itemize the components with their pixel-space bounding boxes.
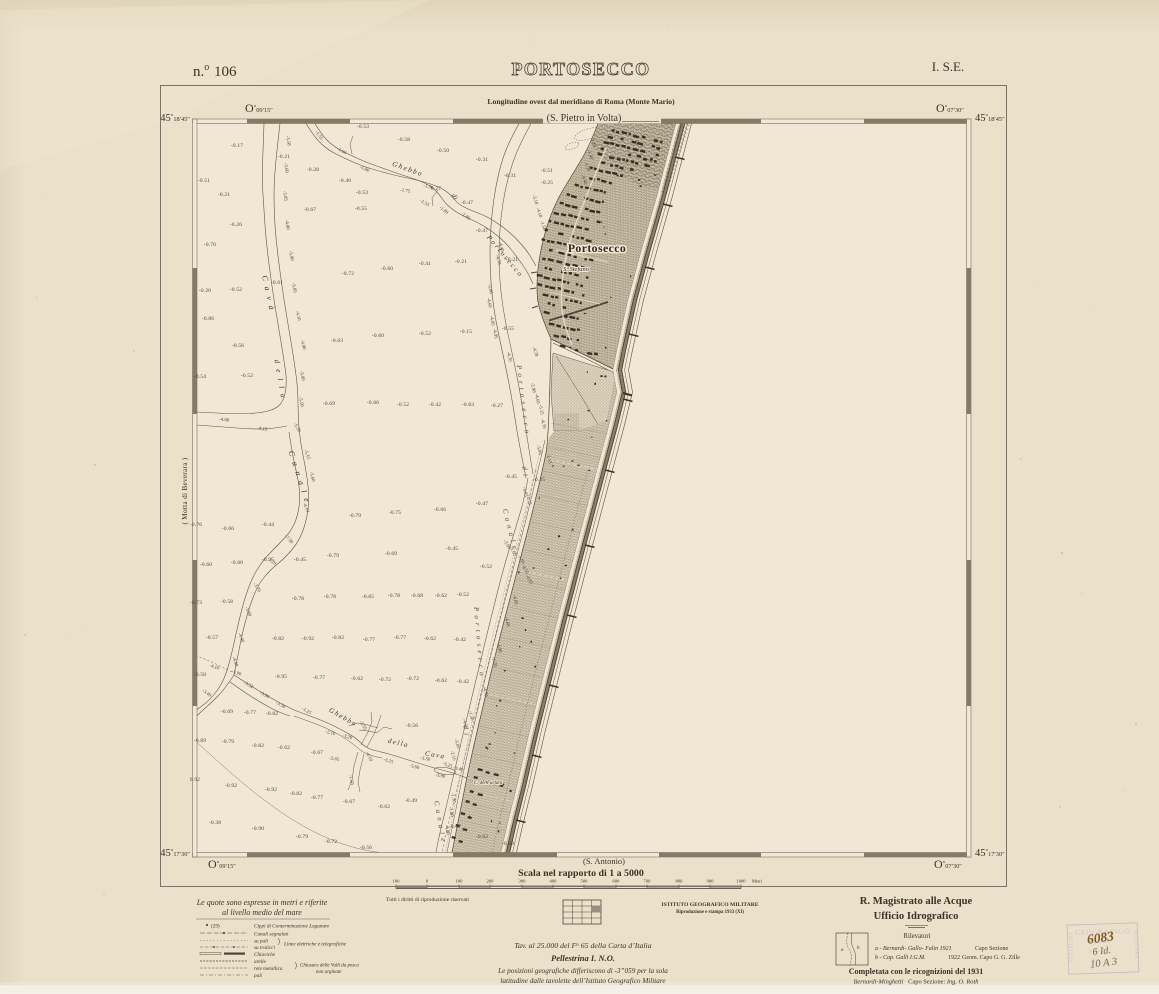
svg-text:(S. Pietro in Volta): (S. Pietro in Volta) bbox=[547, 113, 622, 124]
svg-text:Chiusura delle Valli da pesca: Chiusura delle Valli da pesca bbox=[300, 964, 359, 969]
svg-text:-0.69: -0.69 bbox=[385, 551, 397, 557]
svg-text:-0.20: -0.20 bbox=[199, 288, 211, 294]
svg-text:-0.90: -0.90 bbox=[252, 826, 264, 832]
svg-text:-0.54: -0.54 bbox=[194, 374, 206, 380]
svg-text:800: 800 bbox=[676, 879, 684, 884]
svg-text:-0.60: -0.60 bbox=[372, 333, 384, 339]
svg-text:-0.82: -0.82 bbox=[290, 791, 302, 797]
svg-text:-0.53: -0.53 bbox=[356, 190, 368, 196]
svg-text:-0.62: -0.62 bbox=[378, 804, 390, 810]
svg-text:-0.56: -0.56 bbox=[406, 723, 418, 729]
svg-text:-0.63: -0.63 bbox=[331, 338, 343, 344]
svg-text:Tav. al 25.000 del Fo 65 della: Tav. al 25.000 del Fo 65 della Carta d’I… bbox=[514, 941, 651, 950]
svg-text:Completata con le ricognizioni: Completata con le ricognizioni del 1931 bbox=[849, 967, 983, 976]
svg-text:n.o 106: n.o 106 bbox=[193, 62, 237, 80]
svg-text:-0.52: -0.52 bbox=[397, 402, 409, 408]
svg-text:-0.49: -0.49 bbox=[405, 798, 417, 804]
svg-text:0.92: 0.92 bbox=[190, 777, 200, 783]
svg-text:-0.40: -0.40 bbox=[339, 178, 351, 184]
svg-text:-0.45: -0.45 bbox=[294, 557, 306, 563]
svg-text:-0.77: -0.77 bbox=[394, 635, 406, 641]
svg-text:700: 700 bbox=[644, 879, 652, 884]
svg-text:(29): (29) bbox=[211, 923, 220, 930]
svg-text:Bernardi-Minghetti Capo Sezi: Bernardi-Minghetti Capo Sezione: Ing. O.… bbox=[854, 979, 979, 986]
svg-text:pali: pali bbox=[253, 973, 263, 979]
svg-text:600: 600 bbox=[613, 879, 621, 884]
svg-text:-0.69: -0.69 bbox=[323, 401, 335, 407]
svg-text:-0.67: -0.67 bbox=[304, 207, 316, 213]
svg-text:Tutti i diritti di riproduzion: Tutti i diritti di riproduzione riservat… bbox=[386, 897, 469, 903]
svg-text:ISTITUTO GEOGRAFICO MILITARE: ISTITUTO GEOGRAFICO MILITARE bbox=[661, 902, 758, 908]
svg-text:-0.50: -0.50 bbox=[437, 148, 449, 154]
svg-text:-0.73: -0.73 bbox=[190, 600, 202, 606]
svg-text:-0.79: -0.79 bbox=[222, 739, 234, 745]
svg-text:a - Bernardi- Gallo- Falin 192: a - Bernardi- Gallo- Falin 1921 bbox=[875, 946, 952, 952]
svg-text:-0.83: -0.83 bbox=[462, 402, 474, 408]
svg-text:-0.77: -0.77 bbox=[313, 675, 325, 681]
svg-text:300: 300 bbox=[519, 879, 527, 884]
svg-text:-0.49: -0.49 bbox=[502, 841, 514, 847]
svg-text:-0.78: -0.78 bbox=[388, 593, 400, 599]
svg-text:Metri: Metri bbox=[752, 879, 763, 884]
svg-text:Le quote sono espresse in metr: Le quote sono espresse in metri e riferi… bbox=[196, 898, 328, 907]
svg-text:-0.52: -0.52 bbox=[241, 373, 253, 379]
svg-text:Canali segnalati: Canali segnalati bbox=[254, 932, 289, 938]
svg-text:-0.82: -0.82 bbox=[332, 635, 344, 641]
svg-text:-0.78: -0.78 bbox=[292, 596, 304, 602]
svg-text:-0.60: -0.60 bbox=[200, 562, 212, 568]
svg-text:-0.21: -0.21 bbox=[506, 257, 518, 263]
svg-text:-0.55: -0.55 bbox=[502, 326, 514, 332]
svg-text:-0.60: -0.60 bbox=[381, 266, 393, 272]
svg-text:Pellestrina I. N.O.: Pellestrina I. N.O. bbox=[551, 953, 615, 963]
svg-text:-0.51: -0.51 bbox=[198, 178, 210, 184]
svg-text:-0.75: -0.75 bbox=[389, 510, 401, 516]
svg-text:Geom. Capo G. G. Zille: Geom. Capo G. G. Zille bbox=[962, 955, 1020, 961]
svg-text:-0.66: -0.66 bbox=[222, 526, 234, 532]
svg-text:Linee elettriche e telegrafich: Linee elettriche e telegrafiche bbox=[283, 941, 347, 948]
svg-text:-0.78: -0.78 bbox=[324, 594, 336, 600]
svg-text:arelle: arelle bbox=[254, 959, 267, 965]
svg-text:-0.62: -0.62 bbox=[476, 834, 488, 840]
svg-text:-0.52: -0.52 bbox=[480, 564, 492, 570]
svg-text:PORTOSECCO: PORTOSECCO bbox=[511, 59, 650, 79]
svg-text:non arginate: non arginate bbox=[316, 970, 342, 975]
svg-text:-0.82: -0.82 bbox=[266, 711, 278, 717]
svg-text:400: 400 bbox=[550, 879, 558, 884]
svg-text:Scala nel rapporto di 1 a 5000: Scala nel rapporto di 1 a 5000 bbox=[518, 868, 644, 879]
svg-text:-0.58: -0.58 bbox=[398, 137, 410, 143]
svg-text:-0.21: -0.21 bbox=[218, 192, 230, 198]
svg-text:-0.31: -0.31 bbox=[476, 157, 488, 163]
svg-text:-0.61: -0.61 bbox=[271, 280, 283, 286]
svg-text:( Motta di Beverara ): ( Motta di Beverara ) bbox=[181, 457, 189, 524]
svg-text:900: 900 bbox=[707, 879, 715, 884]
svg-text:-0.51: -0.51 bbox=[541, 168, 553, 174]
svg-text:-0.56: -0.56 bbox=[232, 343, 244, 349]
svg-text:Rilevatori: Rilevatori bbox=[903, 933, 930, 940]
svg-text:-0.62: -0.62 bbox=[435, 593, 447, 599]
svg-text:-0.95: -0.95 bbox=[275, 674, 287, 680]
svg-text:-0.25: -0.25 bbox=[533, 477, 545, 483]
svg-text:-0.67: -0.67 bbox=[449, 824, 461, 830]
svg-text:-0.60: -0.60 bbox=[231, 560, 243, 566]
svg-text:Capo Sezione: Capo Sezione bbox=[975, 946, 1008, 952]
svg-text:d i: d i bbox=[520, 466, 529, 478]
svg-text:-0.62: -0.62 bbox=[424, 636, 436, 642]
svg-text:-0.42: -0.42 bbox=[454, 637, 466, 643]
svg-text:-0.41: -0.41 bbox=[419, 261, 431, 267]
svg-text:rete metallica: rete metallica bbox=[254, 966, 283, 972]
svg-text:1000: 1000 bbox=[736, 879, 746, 884]
svg-text:-0.67: -0.67 bbox=[343, 799, 355, 805]
svg-text:-0.45: -0.45 bbox=[446, 546, 458, 552]
svg-text:b - Cap. Galli I.G.M.: b - Cap. Galli I.G.M. bbox=[875, 955, 926, 961]
svg-text:-0.79: -0.79 bbox=[327, 553, 339, 559]
svg-text:-0.25: -0.25 bbox=[541, 180, 553, 186]
svg-text:-0.70: -0.70 bbox=[204, 242, 216, 248]
svg-text:C. dei Furlani: C. dei Furlani bbox=[474, 781, 503, 786]
svg-text:-0.57: -0.57 bbox=[206, 635, 218, 641]
svg-text:-0.27: -0.27 bbox=[491, 403, 503, 409]
svg-text:-0.92: -0.92 bbox=[225, 783, 237, 789]
svg-text:-0.92: -0.92 bbox=[302, 636, 314, 642]
svg-text:-0.58: -0.58 bbox=[194, 672, 206, 678]
svg-text:-0.58: -0.58 bbox=[221, 599, 233, 605]
svg-text:-0.47: -0.47 bbox=[476, 228, 488, 234]
svg-text:Longitudine ovest dal meridian: Longitudine ovest dal meridiano di Roma … bbox=[487, 97, 675, 106]
svg-text:-0.72: -0.72 bbox=[379, 677, 391, 683]
svg-text:-0.89: -0.89 bbox=[194, 738, 206, 744]
svg-text:-0.62: -0.62 bbox=[278, 745, 290, 751]
svg-text:-0.85: -0.85 bbox=[362, 594, 374, 600]
svg-text:-0.67: -0.67 bbox=[311, 750, 323, 756]
svg-text:-0.66: -0.66 bbox=[434, 507, 446, 513]
svg-text:-0.76: -0.76 bbox=[190, 522, 202, 528]
svg-text:-0.21: -0.21 bbox=[278, 154, 290, 160]
svg-text:-0.52: -0.52 bbox=[230, 287, 242, 293]
svg-text:-0.38: -0.38 bbox=[209, 820, 221, 826]
svg-text:-0.42: -0.42 bbox=[429, 402, 441, 408]
svg-text:-0.92: -0.92 bbox=[265, 787, 277, 793]
svg-text:Portosecco: Portosecco bbox=[568, 241, 626, 255]
svg-text:-0.69: -0.69 bbox=[221, 709, 233, 715]
svg-text:latitudine dalle tavolette del: latitudine dalle tavolette dell’Istituto… bbox=[500, 977, 666, 985]
svg-text:-0.72: -0.72 bbox=[407, 676, 419, 682]
svg-text:6 Id.: 6 Id. bbox=[1092, 945, 1111, 958]
svg-text:100: 100 bbox=[393, 879, 401, 884]
svg-text:-0.79: -0.79 bbox=[349, 513, 361, 519]
svg-text:-0.77: -0.77 bbox=[244, 710, 256, 716]
svg-text:Cippi di Conterminazione Lagun: Cippi di Conterminazione Lagunare bbox=[254, 924, 330, 930]
svg-text:al livello medio del mare: al livello medio del mare bbox=[222, 908, 302, 917]
svg-text:-0.82: -0.82 bbox=[252, 743, 264, 749]
svg-text:-0.45: -0.45 bbox=[505, 474, 517, 480]
svg-text:Riproduzione e stampa 1933 (XI: Riproduzione e stampa 1933 (XI) bbox=[676, 910, 744, 915]
svg-text:-0.21: -0.21 bbox=[455, 259, 467, 265]
svg-text:200: 200 bbox=[487, 879, 495, 884]
svg-text:MILITARE: MILITARE bbox=[1132, 930, 1139, 960]
svg-text:-0.47: -0.47 bbox=[461, 200, 473, 206]
svg-text:-0.66: -0.66 bbox=[367, 400, 379, 406]
svg-text:S. Stefano: S. Stefano bbox=[563, 266, 590, 273]
svg-text:Chiaviche: Chiaviche bbox=[254, 952, 276, 958]
svg-text:-0.47: -0.47 bbox=[476, 501, 488, 507]
svg-text:-0.77: -0.77 bbox=[363, 637, 375, 643]
svg-text:-0.44: -0.44 bbox=[262, 522, 274, 528]
svg-text:-0.77: -0.77 bbox=[311, 795, 323, 801]
svg-text:-0.42: -0.42 bbox=[457, 679, 469, 685]
svg-text:I. S.E.: I. S.E. bbox=[932, 59, 965, 74]
svg-text:-0.31: -0.31 bbox=[504, 173, 516, 179]
svg-text:-0.15: -0.15 bbox=[460, 329, 472, 335]
svg-text:-0.52: -0.52 bbox=[457, 592, 469, 598]
svg-text:-0.62: -0.62 bbox=[351, 676, 363, 682]
svg-text:-0.17: -0.17 bbox=[231, 143, 243, 149]
svg-text:1922: 1922 bbox=[948, 955, 960, 961]
svg-text:su pali: su pali bbox=[254, 939, 269, 945]
svg-text:-0.72: -0.72 bbox=[325, 839, 337, 845]
svg-text:-0.68: -0.68 bbox=[411, 593, 423, 599]
svg-text:-0.86: -0.86 bbox=[202, 316, 214, 322]
svg-text:-0.52: -0.52 bbox=[419, 331, 431, 337]
svg-text:-0.56: -0.56 bbox=[360, 845, 372, 851]
svg-text:-0.79: -0.79 bbox=[296, 834, 308, 840]
svg-text:-0.72: -0.72 bbox=[342, 271, 354, 277]
svg-text:R. Magistrato alle Acque: R. Magistrato alle Acque bbox=[860, 896, 973, 907]
svg-text:100: 100 bbox=[456, 879, 464, 884]
svg-text:-0.55: -0.55 bbox=[355, 206, 367, 212]
svg-text:ISTITUTO: ISTITUTO bbox=[1068, 932, 1075, 961]
svg-text:(S. Antonio): (S. Antonio) bbox=[583, 856, 625, 866]
svg-text:-0.82: -0.82 bbox=[272, 636, 284, 642]
svg-text:-0.53: -0.53 bbox=[357, 124, 369, 130]
svg-text:500: 500 bbox=[581, 879, 589, 884]
svg-text:-0.28: -0.28 bbox=[307, 167, 319, 173]
svg-text:-0.62: -0.62 bbox=[435, 678, 447, 684]
svg-text:su tralicci: su tralicci bbox=[254, 945, 275, 951]
svg-text:Ufficio Idrografico: Ufficio Idrografico bbox=[874, 911, 959, 922]
svg-text:-0.26: -0.26 bbox=[230, 222, 242, 228]
svg-text:Le posizioni geografiche diffe: Le posizioni geografiche differiscono di… bbox=[497, 967, 668, 975]
